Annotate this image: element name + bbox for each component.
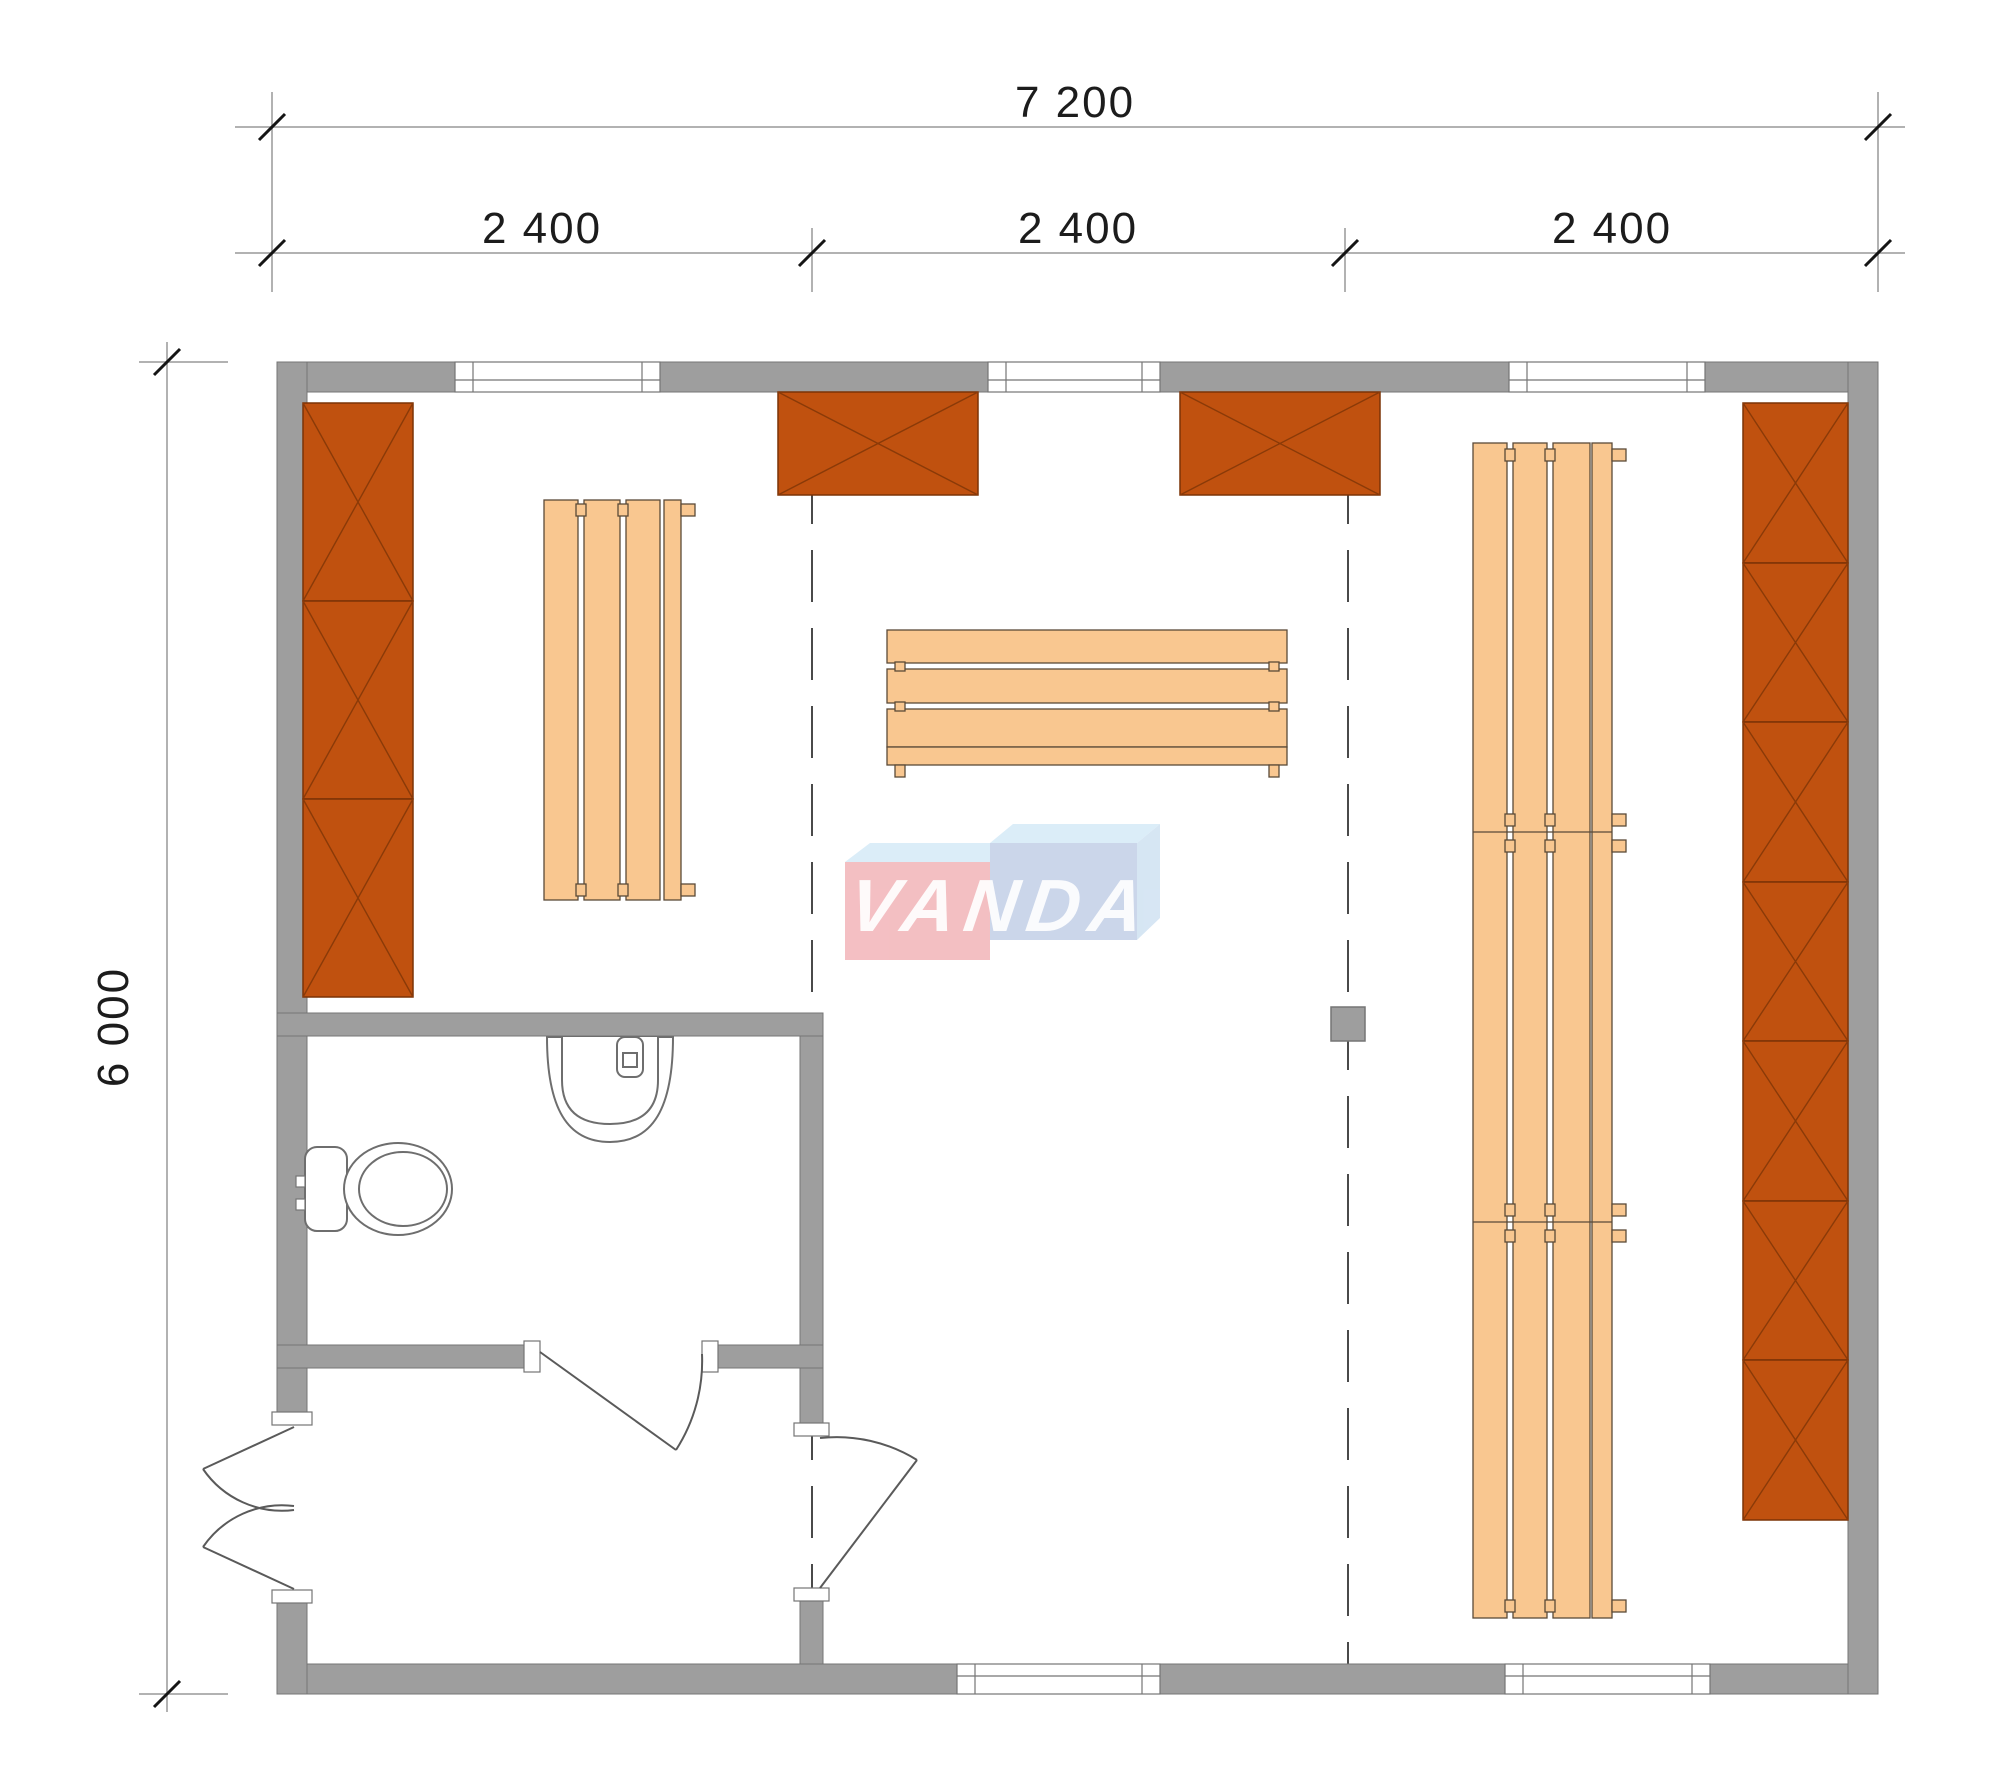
support-post <box>1331 1007 1365 1041</box>
toilet <box>296 1143 452 1235</box>
wall-cabinet-left <box>303 403 413 997</box>
entrance-double-door <box>203 1427 294 1589</box>
dimension-module-1: 2 400 <box>482 204 602 254</box>
dimension-module-2: 2 400 <box>1018 204 1138 254</box>
dimension-total-height: 6 000 <box>89 927 139 1127</box>
window <box>1509 362 1705 392</box>
wall-cabinet-right <box>1743 403 1848 1520</box>
window <box>957 1664 1160 1694</box>
dimension-module-3: 2 400 <box>1552 204 1672 254</box>
window <box>455 362 660 392</box>
window <box>988 362 1160 392</box>
module-dashed-lines <box>812 394 1348 1664</box>
floor-plan: 7 200 2 400 2 400 2 400 6 000 VANDA <box>0 0 2000 1786</box>
main-room-door <box>820 1437 917 1588</box>
bench-middle <box>887 630 1287 777</box>
window <box>1505 1664 1710 1694</box>
bathroom-walls <box>272 1013 829 1664</box>
sink <box>547 1037 673 1142</box>
heater-right <box>1180 392 1380 495</box>
vanda-watermark: VANDA <box>843 856 1160 956</box>
heater-left <box>778 392 978 495</box>
bench-left <box>544 500 695 900</box>
top-windows <box>455 362 1705 392</box>
bench-right <box>1473 443 1626 1618</box>
bathroom-door <box>540 1352 702 1450</box>
dimension-total-width: 7 200 <box>1015 78 1135 128</box>
